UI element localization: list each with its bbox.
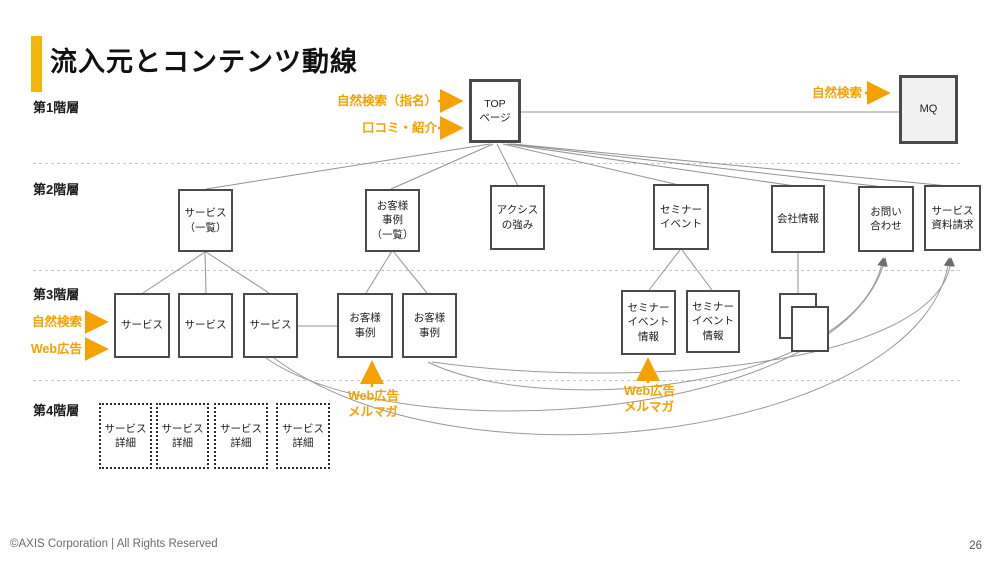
- node-service-request: サービス 資料請求: [924, 185, 981, 251]
- node-seminar-info-1: セミナー イベント 情報: [621, 290, 676, 355]
- edge-top-to-case-list: [391, 144, 493, 189]
- edge-top-to-request: [513, 144, 949, 186]
- node-contact: お問い 合わせ: [858, 186, 914, 252]
- node-service-2: サービス: [178, 293, 233, 358]
- edge-caselist-to-case2: [393, 251, 427, 293]
- edge-servicelist-to-service3: [206, 252, 269, 293]
- node-service-detail-4: サービス 詳細: [276, 403, 330, 469]
- node-service-list: サービス （一覧）: [178, 189, 233, 252]
- node-case-list: お客様 事例 （一覧）: [365, 189, 420, 252]
- inflow-label-natural-search-named: 自然検索（指名）: [322, 94, 437, 110]
- node-top-page: TOP ページ: [469, 79, 521, 143]
- edge-servicelist-to-service1: [143, 252, 205, 293]
- inflow-label-word-of-mouth: 口コミ・紹介: [322, 121, 437, 137]
- edge-servicelist-to-service2: [205, 252, 206, 293]
- inflow-label-natural-search-mq: 自然検索: [806, 86, 862, 102]
- node-axis-strength: アクシス の強み: [490, 185, 545, 250]
- node-case-1: お客様 事例: [337, 293, 393, 358]
- inflow-label-natural-search-service: 自然検索: [24, 315, 82, 331]
- node-service-detail-3: サービス 詳細: [214, 403, 268, 469]
- inflow-label-webad-mailmag-seminar: Web広告 メルマガ: [624, 384, 686, 415]
- edge-caselist-to-case1: [366, 251, 392, 293]
- edge-top-to-seminar: [503, 144, 679, 185]
- inflow-label-web-ad-service: Web広告: [24, 342, 82, 358]
- node-case-2: お客様 事例: [402, 293, 457, 358]
- node-company-info: 会社情報: [771, 185, 825, 253]
- inflow-label-webad-mailmag-case: Web広告 メルマガ: [348, 389, 410, 420]
- node-service-detail-2: サービス 詳細: [156, 403, 209, 469]
- node-service-3: サービス: [243, 293, 298, 358]
- node-mq: MQ: [899, 75, 958, 144]
- slide: 流入元とコンテンツ動線 第1階層 第2階層 第3階層 第4階層: [0, 0, 1000, 565]
- edge-top-to-contact: [510, 144, 884, 187]
- node-seminar-info-2: セミナー イベント 情報: [686, 290, 740, 353]
- node-service-detail-1: サービス 詳細: [99, 403, 152, 469]
- edge-top-to-service-list: [206, 144, 490, 189]
- node-seminar-event: セミナー イベント: [653, 184, 709, 250]
- edge-top-to-strength: [497, 144, 518, 186]
- node-service-1: サービス: [114, 293, 170, 358]
- edge-top-to-company: [507, 144, 795, 186]
- node-company-subpage-front: [791, 306, 829, 352]
